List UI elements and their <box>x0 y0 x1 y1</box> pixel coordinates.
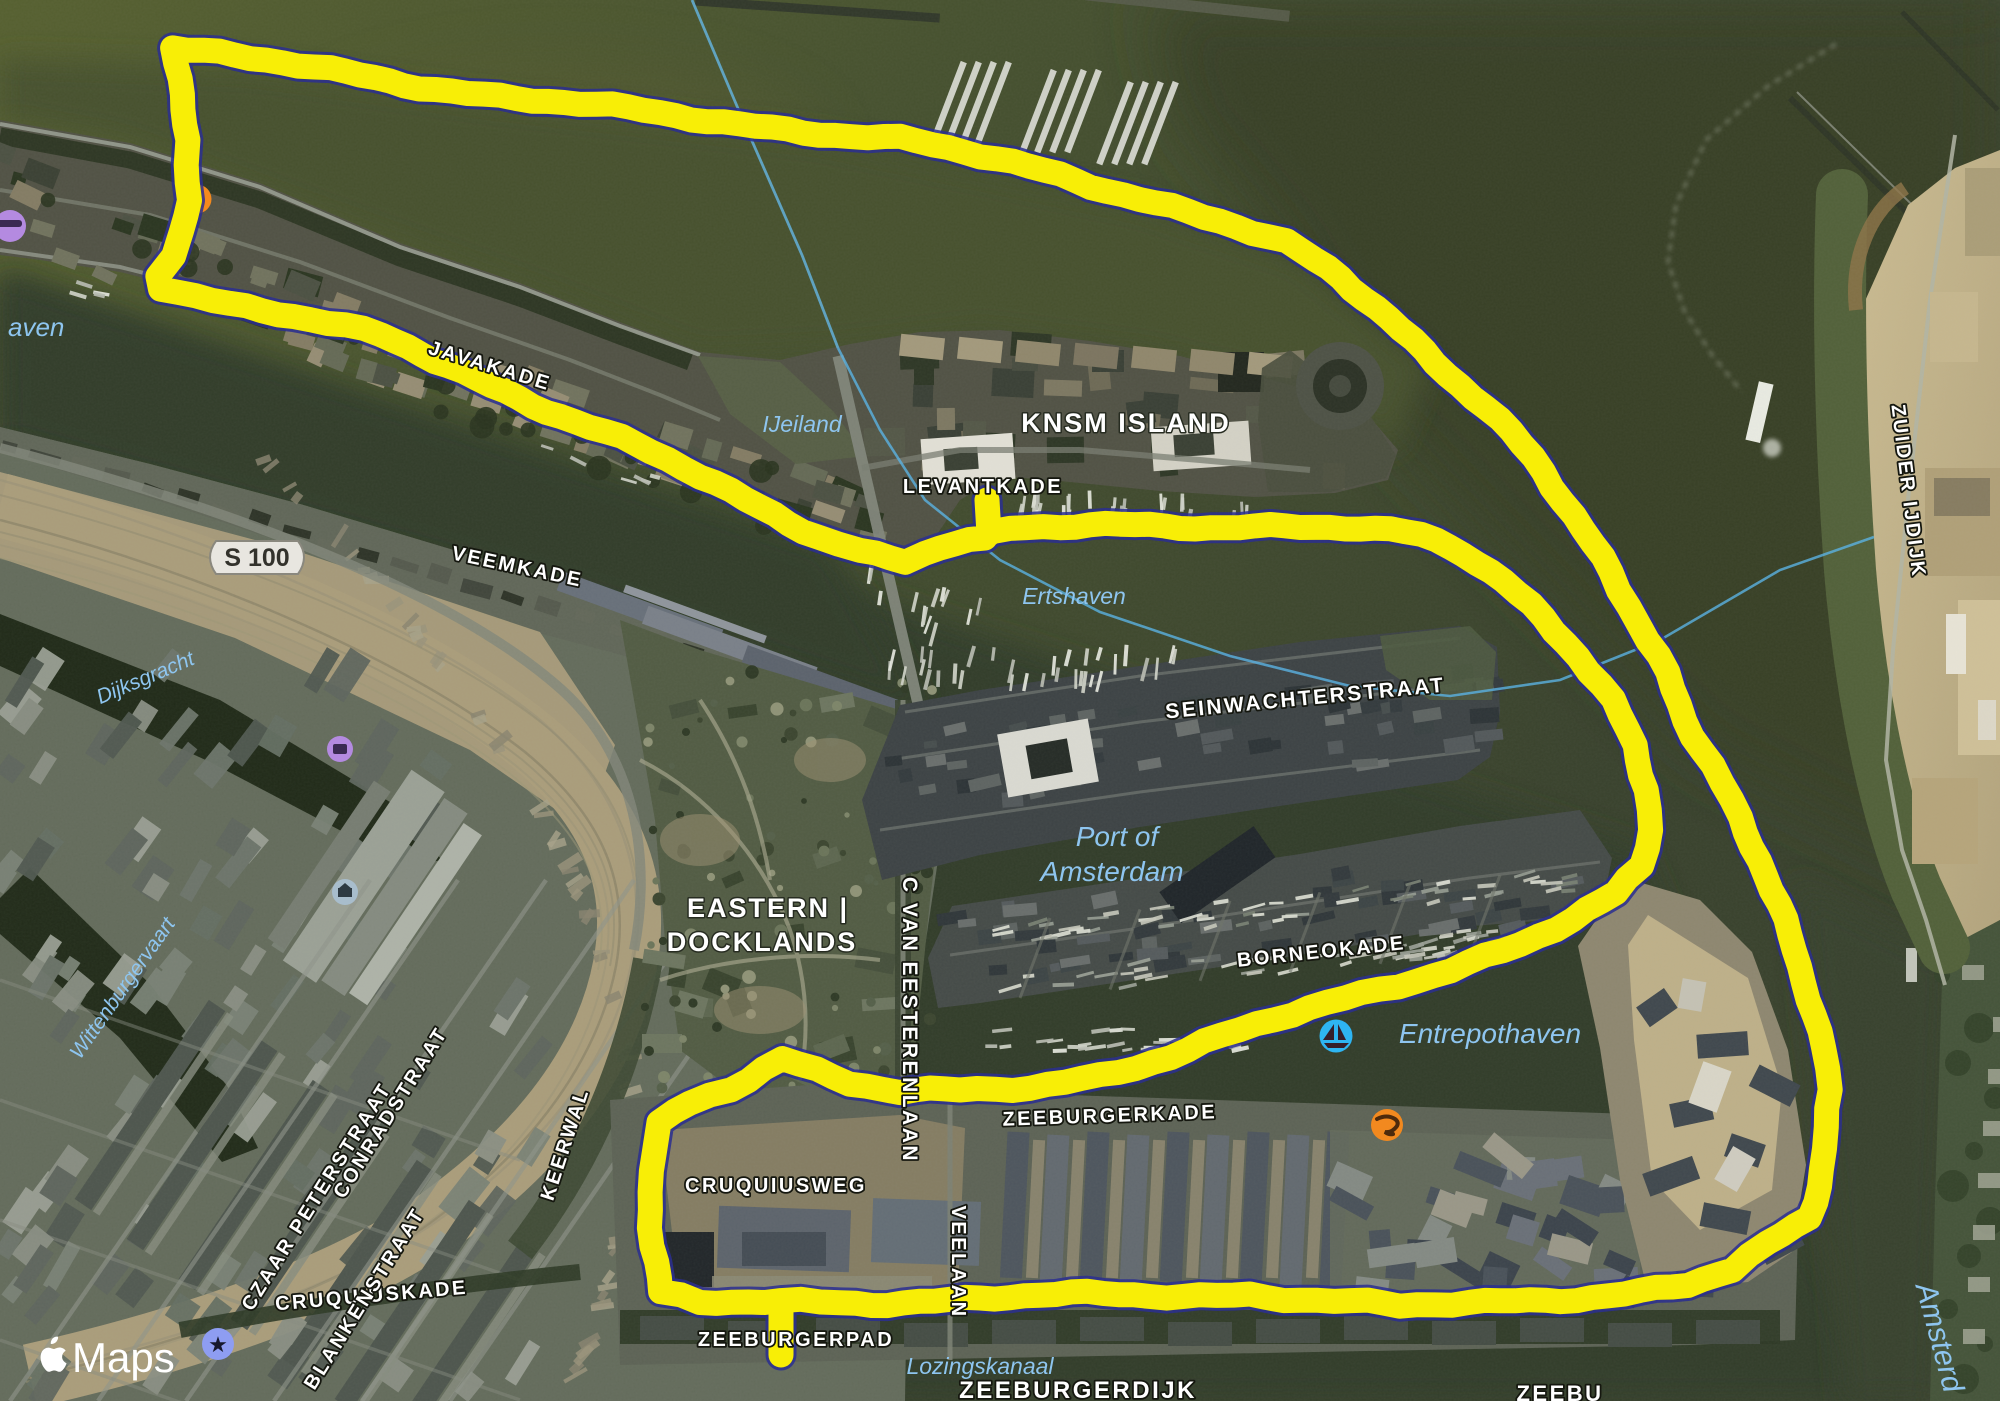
svg-text:KNSM ISLAND: KNSM ISLAND <box>1021 408 1231 438</box>
svg-text:Amsterdam: Amsterdam <box>1038 856 1183 887</box>
svg-text:C VAN EESTERENLAAN: C VAN EESTERENLAAN <box>898 877 921 1163</box>
svg-text:IJeiland: IJeiland <box>762 411 842 437</box>
svg-text:★: ★ <box>208 1332 228 1357</box>
svg-text:Lozingskanaal: Lozingskanaal <box>906 1353 1054 1379</box>
svg-text:LEVANTKADE: LEVANTKADE <box>903 476 1063 498</box>
svg-text:S 100: S 100 <box>224 544 289 572</box>
svg-text:DOCKLANDS: DOCKLANDS <box>667 927 858 957</box>
svg-text:Port of: Port of <box>1076 821 1162 852</box>
svg-text:CRUQUIUSWEG: CRUQUIUSWEG <box>685 1175 867 1197</box>
svg-text:Maps: Maps <box>72 1334 175 1381</box>
svg-text:ZEEBU: ZEEBU <box>1516 1381 1603 1401</box>
svg-text:VEELAAN: VEELAAN <box>947 1205 969 1318</box>
svg-text:Ertshaven: Ertshaven <box>1022 583 1126 609</box>
svg-text:ZEEBURGERDIJK: ZEEBURGERDIJK <box>959 1377 1197 1401</box>
svg-text:EASTERN |: EASTERN | <box>687 893 849 923</box>
svg-text:Entrepothaven: Entrepothaven <box>1399 1018 1581 1049</box>
svg-text:ZEEBURGERPAD: ZEEBURGERPAD <box>698 1329 894 1351</box>
svg-text:aven: aven <box>8 312 64 342</box>
